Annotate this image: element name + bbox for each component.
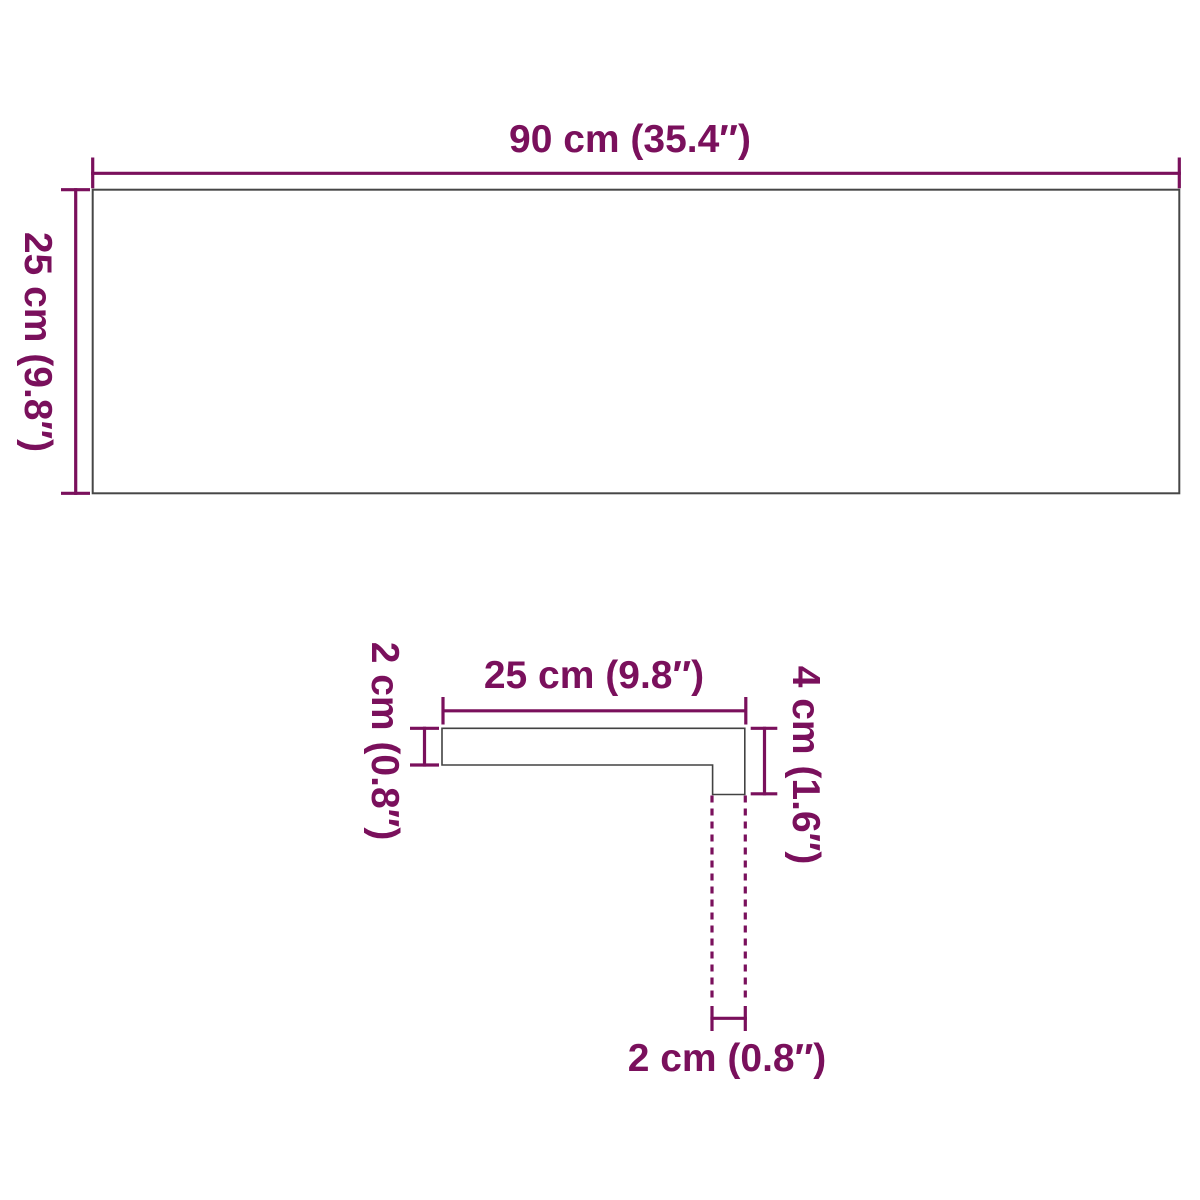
svg-text:90 cm (35.4″): 90 cm (35.4″) bbox=[509, 118, 751, 161]
svg-text:2 cm (0.8″): 2 cm (0.8″) bbox=[363, 642, 406, 841]
svg-text:4 cm (1.6″): 4 cm (1.6″) bbox=[784, 666, 827, 865]
svg-text:2 cm (0.8″): 2 cm (0.8″) bbox=[628, 1037, 827, 1080]
svg-text:25 cm (9.8″): 25 cm (9.8″) bbox=[16, 232, 59, 452]
svg-text:25 cm (9.8″): 25 cm (9.8″) bbox=[484, 654, 704, 697]
